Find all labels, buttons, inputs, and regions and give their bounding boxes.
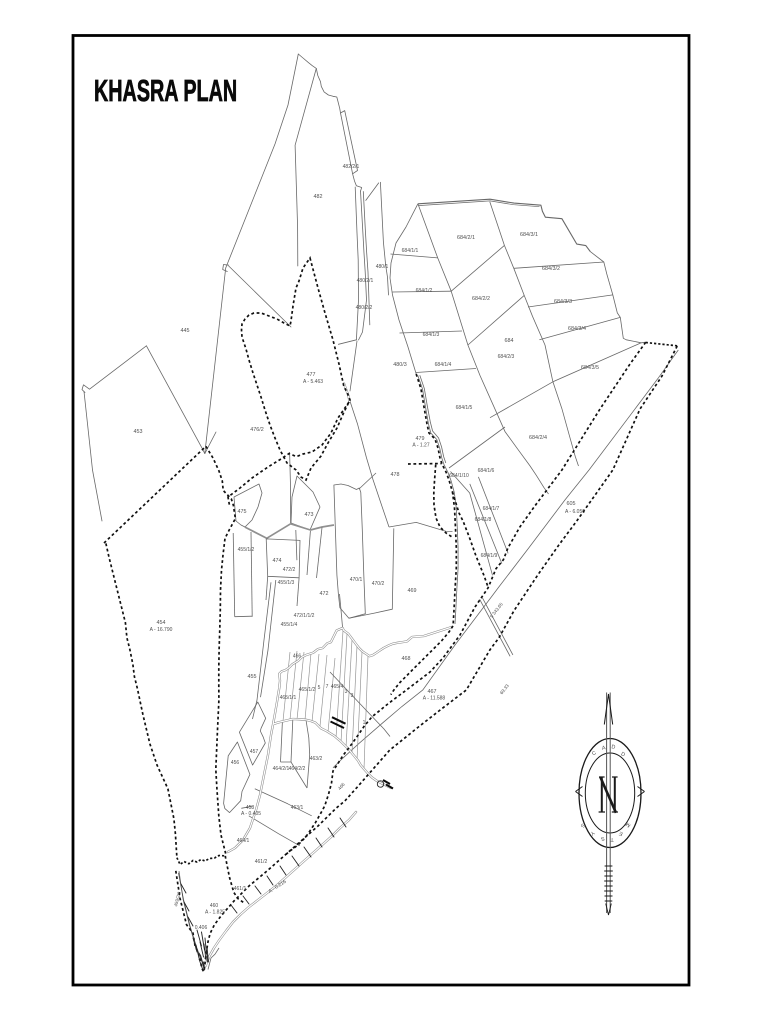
svg-text:684/1/9: 684/1/9 <box>481 553 498 559</box>
svg-text:0.406: 0.406 <box>195 925 208 931</box>
svg-text:A - 0.405: A - 0.405 <box>241 811 261 817</box>
svg-text:480/2/2: 480/2/2 <box>356 305 373 311</box>
svg-text:463/2: 463/2 <box>310 756 323 762</box>
svg-text:A - 5.463: A - 5.463 <box>303 379 323 385</box>
svg-text:457: 457 <box>250 749 259 755</box>
svg-text:472/1/1/2: 472/1/1/2 <box>294 613 315 619</box>
svg-text:605: 605 <box>567 501 576 507</box>
svg-text:482: 482 <box>314 194 323 200</box>
svg-text:684/1/8: 684/1/8 <box>475 517 492 523</box>
svg-text:684/3/5: 684/3/5 <box>581 365 599 371</box>
svg-text:466: 466 <box>293 654 302 660</box>
svg-text:476/2: 476/2 <box>250 427 264 433</box>
svg-text:463/1: 463/1 <box>291 805 304 811</box>
svg-text:460: 460 <box>210 903 219 909</box>
svg-text:472/2: 472/2 <box>283 567 296 573</box>
svg-text:684/1/6: 684/1/6 <box>478 468 495 474</box>
svg-text:480/1: 480/1 <box>376 264 389 270</box>
svg-text:684/3/1: 684/3/1 <box>520 232 538 238</box>
svg-text:684/1/3: 684/1/3 <box>423 332 440 338</box>
svg-text:461/2: 461/2 <box>255 859 268 865</box>
svg-text:684: 684 <box>505 338 514 344</box>
svg-text:A - 1.27: A - 1.27 <box>412 443 429 449</box>
svg-text:465/4: 465/4 <box>331 684 344 690</box>
svg-text:684/3/4: 684/3/4 <box>568 326 586 332</box>
svg-text:684/1/5: 684/1/5 <box>456 405 473 411</box>
svg-text:1: 1 <box>363 720 366 726</box>
svg-text:455/1/2: 455/1/2 <box>238 547 255 553</box>
svg-text:684/1/2: 684/1/2 <box>416 288 433 294</box>
svg-text:455/1/3: 455/1/3 <box>278 580 295 586</box>
svg-text:470/2: 470/2 <box>372 581 385 587</box>
svg-text:474: 474 <box>273 558 282 564</box>
svg-text:456: 456 <box>231 760 240 766</box>
svg-text:453: 453 <box>134 429 143 435</box>
svg-text:684/2/3: 684/2/3 <box>498 354 515 360</box>
svg-text:473: 473 <box>305 512 314 518</box>
svg-text:480/3: 480/3 <box>393 362 407 368</box>
svg-text:475: 475 <box>238 509 247 515</box>
svg-text:480/2/1: 480/2/1 <box>357 278 374 284</box>
svg-text:461/1: 461/1 <box>234 886 247 892</box>
svg-text:479: 479 <box>416 436 425 442</box>
svg-text:478: 478 <box>391 472 400 478</box>
svg-text:A - 16.790: A - 16.790 <box>150 627 173 633</box>
svg-text:684/3/2: 684/3/2 <box>542 266 560 272</box>
svg-text:469: 469 <box>408 588 417 594</box>
svg-text:482/2/1: 482/2/1 <box>343 164 360 170</box>
svg-text:A - 1.825: A - 1.825 <box>205 910 225 916</box>
svg-text:464/2/1: 464/2/1 <box>273 766 290 772</box>
svg-text:684/2/2: 684/2/2 <box>472 296 490 302</box>
svg-text:472: 472 <box>320 591 329 597</box>
svg-text:7: 7 <box>326 684 329 690</box>
svg-text:A - 11.588: A - 11.588 <box>423 696 446 702</box>
svg-text:477: 477 <box>307 372 316 378</box>
svg-text:684/2/1: 684/2/1 <box>457 235 475 241</box>
svg-text:3: 3 <box>351 693 354 699</box>
svg-text:3: 3 <box>345 689 348 695</box>
svg-text:A - 6.050: A - 6.050 <box>565 509 585 515</box>
svg-text:464/2/2: 464/2/2 <box>289 766 306 772</box>
svg-text:470/1: 470/1 <box>350 577 363 583</box>
svg-text:684/1/4: 684/1/4 <box>435 362 452 368</box>
svg-text:KHASRA PLAN: KHASRA PLAN <box>94 72 237 108</box>
svg-text:5: 5 <box>318 685 321 691</box>
svg-text:467: 467 <box>428 689 437 695</box>
svg-text:684/3/3: 684/3/3 <box>554 299 572 305</box>
svg-text:445: 445 <box>181 328 190 334</box>
svg-text:465/1/2: 465/1/2 <box>299 687 316 693</box>
svg-text:468: 468 <box>402 656 411 662</box>
svg-text:464/1: 464/1 <box>237 838 250 844</box>
svg-text:684/2/4: 684/2/4 <box>529 435 547 441</box>
svg-text:684/1/1: 684/1/1 <box>402 248 419 254</box>
svg-text:684/1/10: 684/1/10 <box>449 473 469 479</box>
svg-text:465/1/1: 465/1/1 <box>280 695 297 701</box>
svg-text:684/1/7: 684/1/7 <box>483 506 500 512</box>
svg-text:455: 455 <box>248 674 257 680</box>
svg-text:454: 454 <box>157 620 166 626</box>
svg-text:455/1/4: 455/1/4 <box>281 622 298 628</box>
